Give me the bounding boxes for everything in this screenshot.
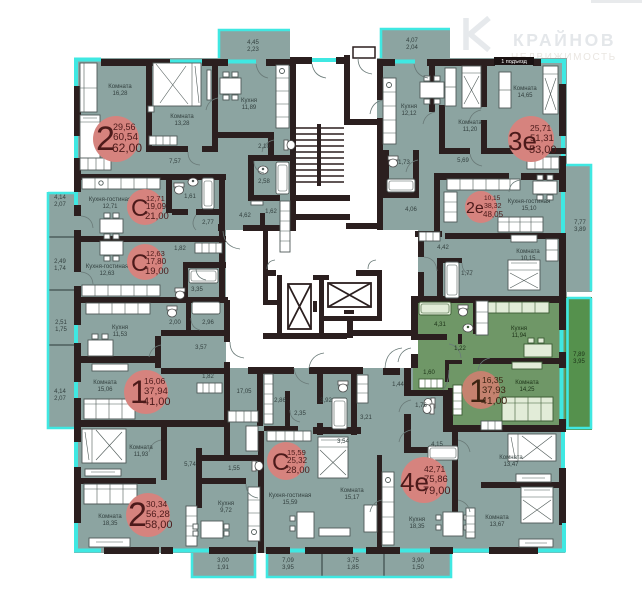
svg-text:48,05: 48,05 <box>483 210 504 219</box>
svg-text:25,32: 25,32 <box>287 456 308 465</box>
svg-text:2,77: 2,77 <box>202 220 214 226</box>
svg-text:7,09: 7,09 <box>282 558 294 564</box>
svg-text:11,20: 11,20 <box>463 127 478 133</box>
svg-text:Кухня: Кухня <box>409 517 425 523</box>
svg-text:1,82: 1,82 <box>202 374 214 380</box>
svg-text:7,77: 7,77 <box>574 220 586 226</box>
svg-text:2,96: 2,96 <box>202 320 214 326</box>
svg-text:Кухня: Кухня <box>241 98 257 104</box>
svg-text:1,62: 1,62 <box>265 209 277 215</box>
svg-text:3,90: 3,90 <box>412 558 424 564</box>
svg-text:58,00: 58,00 <box>145 519 173 531</box>
svg-text:18,35: 18,35 <box>409 524 425 530</box>
svg-text:41,00: 41,00 <box>143 396 171 408</box>
svg-text:Кухня-гостиная: Кухня-гостиная <box>86 264 128 270</box>
svg-text:Комната: Комната <box>129 445 153 451</box>
svg-text:14,65: 14,65 <box>517 93 533 99</box>
svg-text:3,54: 3,54 <box>337 439 349 445</box>
svg-text:3,35: 3,35 <box>191 287 203 293</box>
svg-text:2,04: 2,04 <box>406 45 418 51</box>
svg-text:15,10: 15,10 <box>521 206 537 212</box>
svg-text:3,95: 3,95 <box>282 565 294 571</box>
svg-text:Комната: Комната <box>458 120 482 126</box>
svg-text:30,34: 30,34 <box>146 499 168 509</box>
svg-text:1,91: 1,91 <box>217 565 229 571</box>
svg-text:13,28: 13,28 <box>174 121 190 127</box>
svg-text:19,00: 19,00 <box>145 266 169 277</box>
svg-text:19,09: 19,09 <box>146 202 167 211</box>
svg-text:15,06: 15,06 <box>97 387 113 393</box>
svg-text:11,53: 11,53 <box>113 332 128 338</box>
svg-text:25,71: 25,71 <box>530 123 552 133</box>
svg-text:2,49: 2,49 <box>54 259 66 265</box>
svg-text:3,00: 3,00 <box>217 558 229 564</box>
svg-text:Кухня: Кухня <box>401 104 417 110</box>
svg-text:17,05: 17,05 <box>236 389 252 395</box>
svg-text:Кухня-гостиная: Кухня-гостиная <box>269 493 311 499</box>
svg-text:1,55: 1,55 <box>228 466 240 472</box>
svg-text:2,86: 2,86 <box>274 398 286 404</box>
svg-text:9,72: 9,72 <box>220 508 232 514</box>
svg-text:Кухня: Кухня <box>511 326 527 332</box>
svg-text:1,44: 1,44 <box>392 382 404 388</box>
svg-text:Кухня: Кухня <box>112 325 128 331</box>
svg-text:1 подъезд: 1 подъезд <box>501 59 527 65</box>
svg-text:16,06: 16,06 <box>144 376 166 386</box>
svg-text:15,59: 15,59 <box>282 500 298 506</box>
svg-text:29,56: 29,56 <box>113 122 136 132</box>
svg-text:3,75: 3,75 <box>347 558 359 564</box>
svg-text:1,77: 1,77 <box>461 271 473 277</box>
svg-text:41,00: 41,00 <box>481 395 507 407</box>
svg-text:14,25: 14,25 <box>519 387 535 393</box>
svg-text:15,17: 15,17 <box>344 495 360 501</box>
svg-text:28,00: 28,00 <box>286 465 310 476</box>
svg-text:42,71: 42,71 <box>424 464 446 474</box>
svg-text:16,28: 16,28 <box>112 91 128 97</box>
svg-text:4,14: 4,14 <box>54 195 66 201</box>
svg-text:1,75: 1,75 <box>55 327 67 333</box>
svg-text:2,51: 2,51 <box>55 320 67 326</box>
svg-text:Комната: Комната <box>340 488 364 494</box>
svg-text:12,71: 12,71 <box>102 204 118 210</box>
svg-text:Комната: Комната <box>170 114 194 120</box>
svg-text:1,82: 1,82 <box>174 246 186 252</box>
svg-text:2,35: 2,35 <box>294 411 306 417</box>
svg-text:3,89: 3,89 <box>574 227 586 233</box>
svg-text:62,00: 62,00 <box>112 141 142 155</box>
svg-text:3,57: 3,57 <box>195 345 207 351</box>
svg-text:3,92: 3,92 <box>320 398 332 404</box>
svg-text:17,80: 17,80 <box>146 257 167 266</box>
svg-text:16,35: 16,35 <box>482 375 504 385</box>
svg-text:12,63: 12,63 <box>99 271 115 277</box>
svg-text:4,62: 4,62 <box>239 213 251 219</box>
svg-text:2,58: 2,58 <box>258 179 270 185</box>
svg-text:4,31: 4,31 <box>434 322 446 328</box>
svg-text:10,15: 10,15 <box>520 256 536 262</box>
svg-text:4,42: 4,42 <box>437 245 449 251</box>
svg-text:3,21: 3,21 <box>360 415 372 421</box>
svg-text:Кухня-гостиная: Кухня-гостиная <box>508 199 550 205</box>
svg-text:4,06: 4,06 <box>405 207 417 213</box>
svg-text:13,47: 13,47 <box>503 462 519 468</box>
svg-text:1,74: 1,74 <box>54 266 66 272</box>
svg-text:Кухня-гостиная: Кухня-гостиная <box>89 197 131 203</box>
svg-text:Комната: Комната <box>108 84 132 90</box>
svg-text:Комната: Комната <box>516 249 540 255</box>
svg-text:Комната: Комната <box>485 515 509 521</box>
svg-text:5,74: 5,74 <box>184 462 196 468</box>
svg-text:75,86: 75,86 <box>424 474 448 485</box>
svg-text:КРАЙНОВ: КРАЙНОВ <box>513 29 616 50</box>
svg-text:Комната: Комната <box>515 380 539 386</box>
svg-text:2,07: 2,07 <box>54 396 66 402</box>
svg-text:3,95: 3,95 <box>573 359 585 365</box>
svg-text:11,89: 11,89 <box>242 105 257 111</box>
svg-text:11,93: 11,93 <box>134 452 149 458</box>
svg-text:4,07: 4,07 <box>406 38 418 44</box>
svg-text:53,00: 53,00 <box>529 144 557 156</box>
svg-text:10,15: 10,15 <box>484 195 501 202</box>
svg-text:1,85: 1,85 <box>347 565 359 571</box>
svg-text:7,89: 7,89 <box>573 352 585 358</box>
svg-text:2,07: 2,07 <box>54 202 66 208</box>
svg-text:38,32: 38,32 <box>484 203 502 210</box>
svg-text:11,94: 11,94 <box>512 333 527 339</box>
svg-text:1,73: 1,73 <box>398 160 410 166</box>
svg-text:Комната: Комната <box>98 514 122 520</box>
svg-text:1,22: 1,22 <box>454 346 466 352</box>
svg-text:2е: 2е <box>466 200 484 217</box>
svg-text:Комната: Комната <box>93 380 117 386</box>
svg-text:5,69: 5,69 <box>457 158 469 164</box>
svg-text:21,00: 21,00 <box>145 211 169 222</box>
svg-text:4,15: 4,15 <box>431 442 443 448</box>
svg-text:13,67: 13,67 <box>489 522 505 528</box>
svg-text:Комната: Комната <box>499 455 523 461</box>
svg-text:7,57: 7,57 <box>169 159 181 165</box>
svg-text:Комната: Комната <box>513 86 537 92</box>
svg-text:1,76: 1,76 <box>415 403 427 409</box>
svg-text:4,45: 4,45 <box>247 40 259 46</box>
svg-text:18,35: 18,35 <box>102 521 118 527</box>
svg-text:51,31: 51,31 <box>530 133 554 144</box>
svg-text:1,61: 1,61 <box>184 194 196 200</box>
svg-text:12,12: 12,12 <box>401 111 417 117</box>
svg-text:Кухня: Кухня <box>218 501 234 507</box>
svg-text:1,50: 1,50 <box>412 565 424 571</box>
svg-text:2,10: 2,10 <box>258 144 270 150</box>
svg-text:1,60: 1,60 <box>423 370 435 376</box>
svg-text:2,23: 2,23 <box>247 47 259 53</box>
svg-text:79,00: 79,00 <box>423 485 451 497</box>
svg-text:4,14: 4,14 <box>54 389 66 395</box>
svg-text:2,00: 2,00 <box>169 320 181 326</box>
